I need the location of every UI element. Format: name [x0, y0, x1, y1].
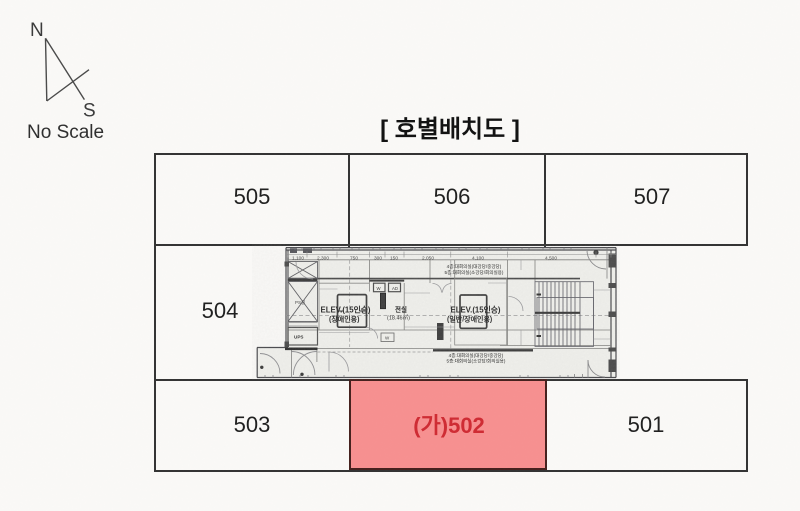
svg-text:4,100: 4,100 — [472, 256, 484, 262]
svg-text:150: 150 — [390, 256, 398, 262]
svg-text:S: S — [83, 101, 96, 122]
svg-text:N: N — [30, 20, 44, 41]
svg-text:PS실: PS실 — [295, 299, 305, 305]
svg-text:300: 300 — [374, 256, 382, 262]
svg-text:2,050: 2,050 — [422, 256, 434, 262]
svg-text:750: 750 — [350, 256, 358, 262]
svg-text:(18.46㎡): (18.46㎡) — [387, 314, 410, 322]
svg-text:4,500: 4,500 — [545, 256, 557, 262]
svg-text:2,300: 2,300 — [317, 256, 329, 262]
svg-text:5층:대회의실(소강당/회의실용): 5층:대회의실(소강당/회의실용) — [445, 269, 504, 276]
svg-text:1,100: 1,100 — [292, 256, 304, 262]
svg-text:ELEV.(15인승): ELEV.(15인승) — [321, 305, 371, 315]
svg-text:5층:대회의실(소강당/회의실용): 5층:대회의실(소강당/회의실용) — [447, 358, 506, 365]
svg-text:전실: 전실 — [395, 305, 407, 314]
svg-text:ELEV.(15인승): ELEV.(15인승) — [451, 305, 501, 315]
svg-text:AD: AD — [392, 286, 398, 291]
svg-text:(일반/장애인용): (일반/장애인용) — [447, 315, 492, 324]
svg-text:UPS: UPS — [294, 335, 303, 340]
svg-text:(장애인용): (장애인용) — [329, 315, 359, 324]
svg-text:4층:대회의실(대강당/중강당): 4층:대회의실(대강당/중강당) — [447, 263, 502, 270]
